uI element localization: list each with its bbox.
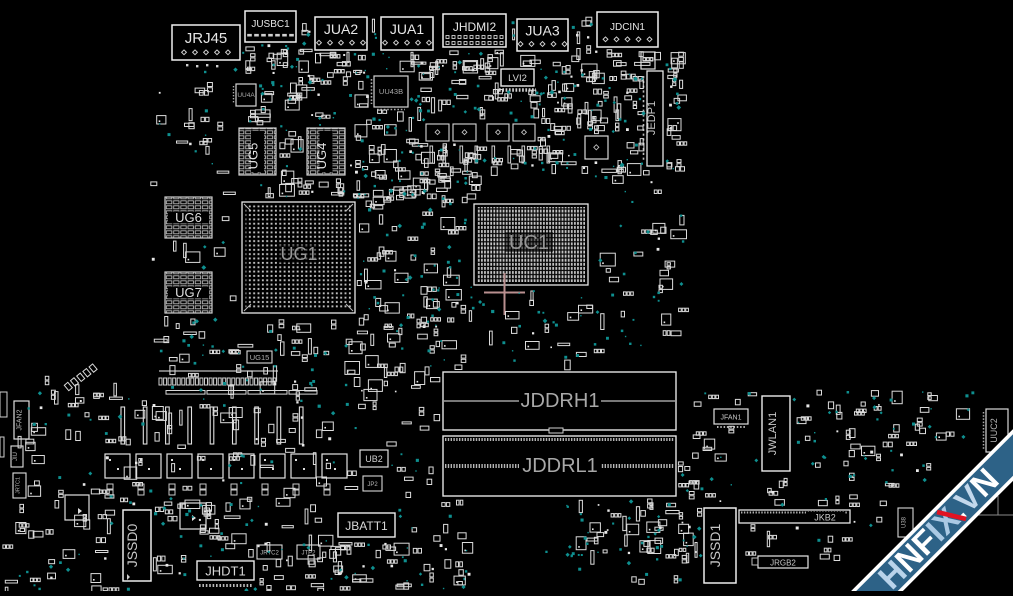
svg-text:JIU: JIU	[13, 452, 19, 461]
svg-text:U38: U38	[902, 516, 908, 528]
svg-text:UG4: UG4	[314, 143, 329, 170]
svg-text:JUA1: JUA1	[390, 21, 424, 37]
svg-text:UG5: UG5	[246, 143, 261, 170]
svg-text:UG15: UG15	[250, 353, 270, 362]
svg-text:JDDRL1: JDDRL1	[522, 455, 598, 477]
svg-text:LVI2: LVI2	[508, 73, 527, 84]
svg-text:UG6: UG6	[175, 210, 202, 225]
svg-text:JFAN2: JFAN2	[17, 409, 24, 430]
svg-text:JRGB2: JRGB2	[770, 559, 796, 568]
svg-text:JP2: JP2	[367, 482, 378, 488]
svg-text:JFAN1: JFAN1	[720, 415, 741, 422]
svg-text:JDCIN1: JDCIN1	[610, 22, 645, 33]
svg-text:UG1: UG1	[280, 244, 317, 264]
svg-text:JRJ45: JRJ45	[185, 30, 228, 47]
svg-text:JBATT1: JBATT1	[345, 519, 388, 533]
svg-text:JRTC1: JRTC1	[16, 477, 22, 494]
svg-text:JDDRH1: JDDRH1	[521, 390, 600, 412]
svg-text:JUSBC1: JUSBC1	[251, 19, 290, 30]
svg-text:UU4A: UU4A	[237, 92, 255, 99]
svg-text:JUA2: JUA2	[324, 21, 358, 37]
svg-text:JEDP1: JEDP1	[646, 101, 658, 135]
svg-text:UUC2: UUC2	[989, 418, 999, 443]
svg-text:JHDT1: JHDT1	[205, 564, 245, 579]
svg-text:UC1: UC1	[509, 232, 549, 254]
svg-text:UU43B: UU43B	[379, 87, 403, 96]
svg-text:JKB2: JKB2	[814, 513, 836, 523]
svg-text:JSSD1: JSSD1	[707, 524, 723, 568]
svg-text:JWLAN1: JWLAN1	[767, 412, 779, 455]
svg-text:UB2: UB2	[365, 454, 383, 464]
svg-text:JHDMI2: JHDMI2	[453, 20, 497, 34]
svg-text:JSSD0: JSSD0	[124, 524, 140, 568]
svg-text:UG7: UG7	[175, 285, 202, 300]
svg-text:JUA3: JUA3	[525, 23, 559, 39]
